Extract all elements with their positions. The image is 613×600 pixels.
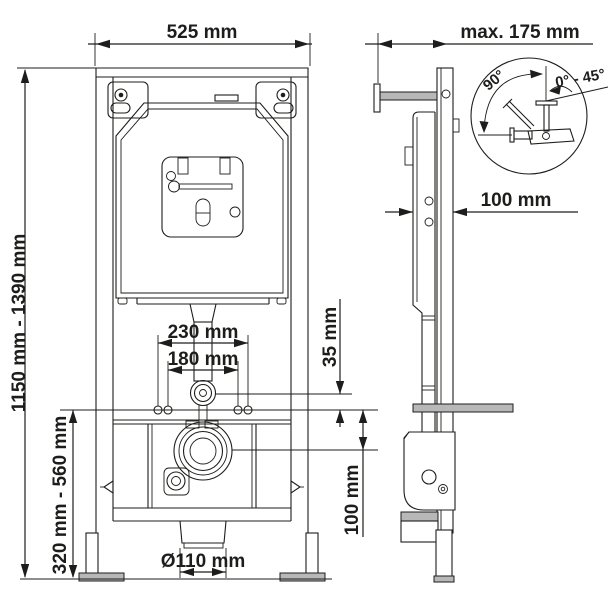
dim-depth-max: max. 175 mm (460, 22, 579, 43)
angle-detail-circle: 90° 0° - 45° (471, 58, 608, 174)
down-pipe (436, 530, 452, 578)
wall-anchor-bottom (413, 404, 513, 412)
side-foot (401, 512, 438, 521)
bracket-plate (528, 129, 574, 144)
cistern-side-profile (405, 112, 435, 432)
dim-fixings-to-drain: 100 mm (342, 465, 363, 536)
cistern (116, 95, 288, 304)
frame-outline (96, 68, 308, 533)
access-panel (162, 157, 243, 237)
wall-anchor-top (374, 84, 437, 112)
drain-socket (164, 421, 232, 495)
installation-frame-drawing: 90° 0° - 45° 525 mm max. 175 mm 1150 mm … (0, 0, 613, 600)
dim-outlet-diameter: Ø110 mm (161, 551, 246, 572)
foot-left (79, 573, 124, 581)
dim-frame-depth: 100 mm (481, 190, 552, 211)
dim-fixing-spacing-inner: 180 mm (168, 349, 239, 370)
technical-drawing-svg: 90° 0° - 45° 525 mm max. 175 mm 1150 mm … (0, 0, 613, 600)
dim-angle-range: 0° - 45° (554, 66, 607, 91)
support-leg-left (86, 533, 98, 574)
support-leg-right (306, 533, 318, 574)
mounting-bracket-right (256, 82, 296, 118)
side-view (374, 68, 513, 582)
valve-head-icon (169, 181, 180, 192)
side-clip-left (104, 481, 113, 493)
side-clip-right (291, 481, 300, 493)
dim-fixing-spacing-outer: 230 mm (168, 322, 239, 343)
outlet-pipe (180, 521, 226, 543)
dim-frame-width: 525 mm (167, 22, 238, 43)
mounting-bracket-left (108, 82, 148, 118)
drain-elbow-side (404, 432, 455, 510)
flush-valve-icon (196, 199, 210, 226)
foot-right (280, 573, 325, 581)
dim-flush-to-fixings: 35 mm (320, 307, 341, 367)
dim-support-range: 320 mm - 560 mm (50, 416, 71, 574)
dim-height-range: 1150 mm - 1390 mm (9, 234, 30, 413)
dim-angle-90: 90° (480, 67, 508, 95)
